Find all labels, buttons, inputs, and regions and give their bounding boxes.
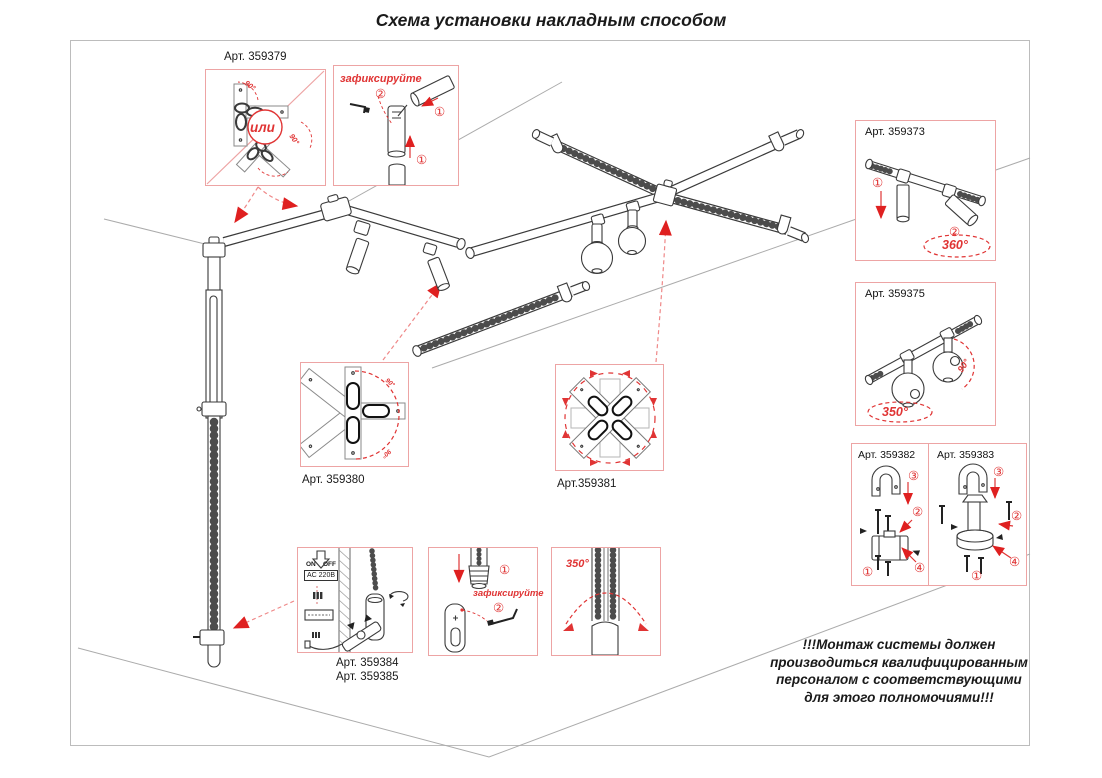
corner-connector [319,192,352,222]
voltage-label: AC 220В [304,570,338,581]
warning-line: !!!Монтаж системы должен [748,636,1050,654]
art-359383-box: Арт. 359383 ③ ② ④ ① [928,443,1027,586]
art-359382-box: Арт. 359382 ③ ② ④ ① [851,443,929,586]
step-1: ① [416,154,427,166]
step-2: ② [1011,510,1022,522]
step-1: ① [872,177,883,189]
art-359384-label: Арт. 359384 [336,657,399,669]
front-ceiling-track [411,280,591,357]
art-359384-box: ON OFF AC 220В [297,547,413,653]
art-359385-label: Арт. 359385 [336,671,399,683]
switch-off-label: OFF [323,561,336,568]
art-359375-illustration: 90° [856,283,995,425]
fixation-bottom-caption: зафиксируйте [473,588,544,599]
cylinder-spotlight [423,242,451,291]
step-2: ② [912,506,923,518]
fixation-top-box: зафиксируйте ② ① ① [333,65,459,186]
step-1: ① [434,106,445,118]
art-359381-illustration [556,365,663,470]
art-359373-label: Арт. 359373 [865,126,925,138]
art-359380-illustration: 90° 90° [301,363,408,466]
corner-pole [193,237,226,667]
step-4: ④ [914,562,925,574]
step-3: ③ [993,466,1004,478]
art-359381-label: Арт.359381 [557,478,616,490]
warning-line: персоналом с соответствующими [748,671,1050,689]
art-359375-label: Арт. 359375 [865,288,925,300]
step-4: ④ [1009,556,1020,568]
fixation-bottom-illustration [429,548,537,655]
step-1: ① [499,564,510,576]
art-359373-illustration [856,121,995,260]
step-1: ① [971,570,982,582]
warning-line: производиться квалифицированным [748,654,1050,672]
step-2: ② [493,602,504,614]
step-2: ② [375,88,386,100]
installation-diagram-page: Схема установки накладным способом [0,0,1102,778]
art-359379-box: 90° 90° или [205,69,326,186]
warning-line: для этого полномочиями!!! [748,689,1050,707]
rotation-350-box: 350° [551,547,661,656]
or-label: или [250,120,275,135]
angle-350: 350° [882,405,908,419]
svg-text:90°: 90° [384,376,397,389]
art-359380-label: Арт. 359380 [302,474,365,486]
switch-on-label: ON [306,561,316,568]
step-1: ① [862,566,873,578]
art-359382-label: Арт. 359382 [858,449,915,461]
angle-360: 360° [942,238,968,252]
page-title: Схема установки накладным способом [0,10,1102,31]
art-359379-label: Арт. 359379 [224,51,287,63]
art-359375-box: 90° Арт. 359375 350° [855,282,996,426]
angle-350-free: 350° [566,558,589,570]
svg-text:90°: 90° [287,132,301,147]
cylinder-spotlight [345,220,370,275]
step-3: ③ [908,470,919,482]
fixation-top-caption: зафиксируйте [340,73,422,85]
art-359383-label: Арт. 359383 [937,449,994,461]
fixation-bottom-box: ① зафиксируйте ② [428,547,538,656]
left-ceiling-track [224,192,466,251]
art-359373-box: Арт. 359373 ① ② 360° [855,120,996,261]
art-359381-box [555,364,664,471]
art-359380-box: 90° 90° [300,362,409,467]
step-2: ② [949,226,960,238]
warning-note: !!!Монтаж системы должен производиться к… [748,636,1050,706]
